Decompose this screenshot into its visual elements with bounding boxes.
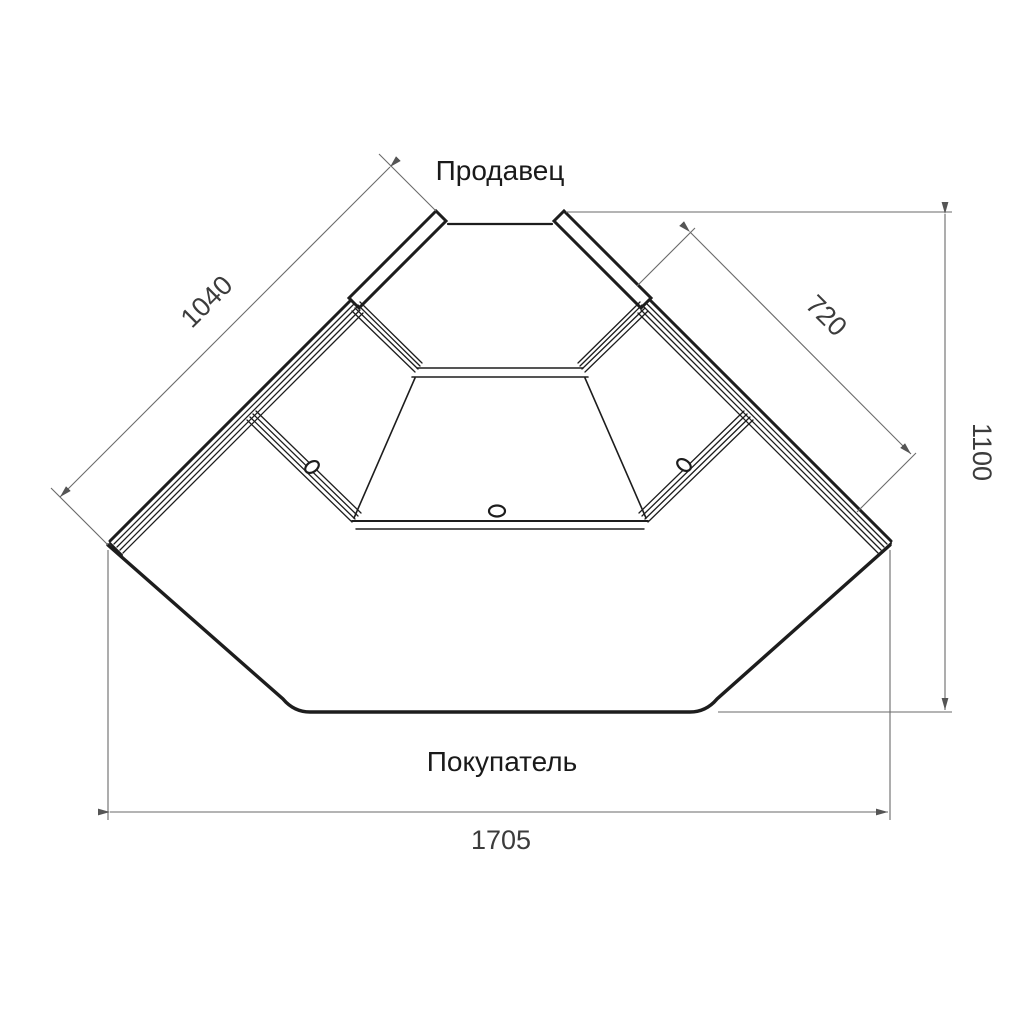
seller-label: Продавец <box>436 155 565 186</box>
divider-band-left <box>247 411 361 522</box>
drain-hole-center <box>489 506 505 517</box>
dimension-label-right-glass: 720 <box>800 289 853 342</box>
dimension-line <box>690 232 911 454</box>
dimension-label-depth: 1100 <box>967 423 997 481</box>
corner-showcase-plan-drawing: Продавец Покупатель 1040 720 1100 1705 <box>0 0 1024 1024</box>
extension-line <box>857 453 916 512</box>
front-outline <box>108 545 890 712</box>
left-end-panel <box>349 211 446 308</box>
extension-line <box>51 488 108 545</box>
counter-side-band-right <box>578 302 648 372</box>
front-glass-right <box>638 300 891 555</box>
buyer-label: Покупатель <box>427 746 577 777</box>
counter-side-band-left <box>352 302 422 372</box>
extension-line <box>637 228 695 286</box>
well-side-left <box>354 378 415 518</box>
right-end-panel <box>554 211 651 308</box>
extension-line <box>379 154 436 211</box>
dimension-right-glass <box>637 228 916 512</box>
drain-holes <box>303 457 693 517</box>
well-side-right <box>585 378 646 518</box>
counter-front-edge <box>412 368 588 377</box>
technical-drawing-canvas: Продавец Покупатель 1040 720 1100 1705 <box>0 0 1024 1024</box>
dimension-left-glass <box>51 154 436 545</box>
drain-hole-right <box>675 457 693 474</box>
drain-hole-left <box>303 459 321 476</box>
front-glass-left <box>110 300 363 555</box>
dimension-label-left-glass: 1040 <box>175 270 239 334</box>
divider-band-right <box>639 411 753 522</box>
dimension-label-front-width: 1705 <box>471 825 531 855</box>
dimension-line <box>60 167 390 497</box>
dimension-front-width <box>108 550 890 820</box>
